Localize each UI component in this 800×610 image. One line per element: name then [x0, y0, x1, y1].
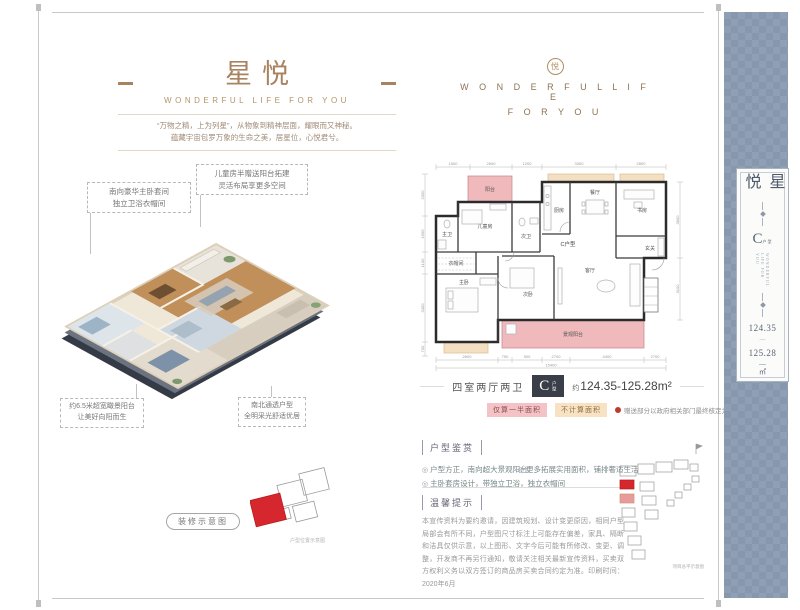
- callout-text: 儿童房半赠送阳台拓建: [201, 168, 303, 180]
- appreciation-item: ◎主卧套房设计，带独立卫浴，独立衣帽间: [422, 477, 626, 491]
- callout-wide-balcony: 约6.5米超宽瞰景阳台 让美好向阳而生: [60, 398, 144, 428]
- highlighted-unit: [250, 493, 286, 527]
- sidebar-title: 星悦: [739, 173, 787, 196]
- unit-badge-sub: 户型: [551, 381, 557, 392]
- callout-text: 全明采光舒适优居: [243, 412, 301, 423]
- appreciation-section: 户型鉴赏 ◎户型方正，南向超大景观阳台 ◎更多拓展实用面积，铺排奢适生活 ◎主卧…: [422, 438, 626, 492]
- notice-title: 温馨提示: [422, 495, 482, 510]
- dim-total-label: 15400: [545, 363, 557, 368]
- dim-label: 3800: [675, 215, 680, 225]
- room-label: 餐厅: [590, 189, 600, 196]
- layout-text: 四室两厅两卫: [452, 379, 524, 394]
- sidebar-area1: 124.35: [749, 323, 777, 333]
- legend-note: 赠送部分以政府相关部门最终核定为准: [615, 405, 735, 415]
- highlighted-building: [620, 480, 634, 489]
- room-label: 次卧: [523, 291, 533, 298]
- room-label: 阳台: [485, 186, 495, 193]
- dim-label: 1600: [420, 229, 425, 239]
- equipment-platform: [644, 278, 658, 312]
- crop-mark: [36, 4, 41, 11]
- tagline-line1: “万物之精，上为列星”，从物象到精神层面，耀眼而又神秘。: [120, 120, 394, 132]
- dim-label: 2700: [651, 354, 661, 359]
- notice-section: 温馨提示 本宣传资料为要约邀请，因建筑规划、设计变更原因，相同户型局部会有所不同…: [422, 493, 624, 592]
- tagline: “万物之精，上为列星”，从物象到精神层面，耀眼而又神秘。 蕴藏宇宙包罗万象的生命…: [118, 114, 396, 151]
- dim-label: 2700: [552, 354, 562, 359]
- crop-mark: [716, 4, 721, 11]
- callout-text: 灵活布局享更多空间: [201, 180, 303, 192]
- isometric-render: [45, 198, 355, 423]
- callout-text: 南北通透户型: [243, 401, 301, 412]
- unit-badge-letter: C: [539, 379, 549, 394]
- dim-label: 4400: [603, 354, 613, 359]
- compass-icon: [696, 444, 702, 454]
- unit-location-caption: 户型位置示意图: [290, 537, 325, 544]
- room-label: 主卧: [459, 279, 469, 286]
- divider: [680, 386, 704, 387]
- dim-label: 1500: [449, 161, 459, 166]
- dim-label: 2000: [420, 190, 425, 200]
- dim-label: 1100: [420, 258, 425, 267]
- callout-text: 南向豪华主卧套间: [92, 186, 186, 198]
- room-label: 儿童房: [477, 223, 492, 230]
- sidebar-unit: C户型: [752, 232, 772, 247]
- dim-label: 2600: [463, 354, 473, 359]
- appreciation-item: ◎户型方正，南向超大景观阳台: [422, 463, 518, 477]
- area-prefix: 约: [572, 385, 579, 392]
- bay-window-area: [444, 342, 488, 353]
- sidebar-vertical-english: WONDERFUL LIFE FOR YOU: [755, 253, 770, 287]
- sidebar-unit-sub: 户型: [763, 239, 773, 244]
- room-label: 衣帽间: [448, 260, 463, 267]
- dim-label: 2800: [637, 161, 647, 166]
- dim-label: 900: [524, 354, 531, 359]
- appreciation-item-text: 户型方正，南向超大景观阳台: [430, 465, 528, 474]
- room-label: 次卫: [521, 233, 531, 240]
- dim-label: 3300: [575, 161, 585, 166]
- legend-half-tag: 仅算一半面积: [487, 403, 547, 417]
- site-plan-diagram: 项目总平示意图: [612, 438, 708, 580]
- frame-left: [38, 4, 39, 606]
- appreciation-title: 户型鉴赏: [422, 440, 482, 455]
- brand-seal-char: 悦: [551, 61, 559, 72]
- callout-text: 独立卫浴衣帽间: [92, 198, 186, 210]
- frame-top: [52, 12, 704, 13]
- room-label: 书房: [637, 207, 647, 214]
- dim-label: 3400: [420, 303, 425, 313]
- area-text: 约124.35-125.28m²: [572, 379, 671, 393]
- crop-mark: [36, 600, 41, 607]
- header-subtitle: WONDERFUL LIFE FOR YOU: [118, 96, 396, 105]
- brand-seal-icon: 悦: [547, 58, 564, 75]
- callout-connector: [136, 384, 137, 398]
- sidebar-dash: —: [760, 339, 766, 343]
- callout-connector: [90, 208, 91, 254]
- room-label: 玄关: [645, 245, 655, 252]
- unit-badge: C 户型: [532, 375, 564, 397]
- callout-master-suite: 南向豪华主卧套间 独立卫浴衣帽间: [87, 182, 191, 213]
- legend-note-text: 赠送部分以政府相关部门最终核定为准: [624, 405, 735, 415]
- red-dot-icon: [615, 407, 621, 413]
- callout-north-south: 南北通透户型 全明采光舒适优居: [238, 397, 306, 427]
- sidebar-area-unit: ㎡: [759, 364, 766, 377]
- header-left: 星悦 WONDERFUL LIFE FOR YOU “万物之精，上为列星”，从物…: [118, 52, 396, 151]
- room-label: 厨房: [554, 207, 564, 214]
- floor-plan-2d: 1500 2600 1200 3300 2800 2600 750 900 27…: [418, 160, 698, 372]
- dim-label: 1200: [523, 161, 533, 166]
- sidebar-card: 星悦 C户型 WONDERFUL LIFE FOR YOU 124.35 — 1…: [736, 168, 789, 382]
- render-caption: 装修示意图: [166, 513, 240, 530]
- sidebar-area2: 125.28: [749, 348, 777, 358]
- room-label: 主卫: [442, 231, 452, 238]
- dim-label: 700: [420, 345, 425, 352]
- divider-ornament: [761, 202, 765, 226]
- dim-label: 750: [502, 354, 509, 359]
- bullet-icon: ◎: [518, 467, 524, 474]
- callout-children-room: 儿童房半赠送阳台拓建 灵活布局享更多空间: [196, 164, 308, 195]
- dim-label: 3100: [675, 284, 680, 294]
- frame-right: [718, 4, 719, 606]
- appreciation-item: ◎更多拓展实用面积，铺排奢适生活: [518, 463, 626, 477]
- divider: [420, 386, 444, 387]
- header-right-line1: W O N D E R F U L L I F E: [455, 82, 655, 102]
- callout-text: 让美好向阳而生: [65, 413, 139, 424]
- frame-bottom: [52, 598, 704, 599]
- callout-connector: [200, 191, 201, 227]
- room-label: 景观阳台: [563, 331, 583, 338]
- page-title: 星悦: [215, 52, 299, 91]
- tagline-line2: 蕴藏宇宙包罗万象的生命之美，居星位，心悦君兮。: [120, 132, 394, 144]
- title-dash-right: [381, 82, 396, 85]
- unit-type-label: C户型: [561, 240, 576, 248]
- header-right: 悦 W O N D E R F U L L I F E F O R Y O U: [455, 58, 655, 117]
- bullet-icon: ◎: [422, 467, 428, 474]
- callout-connector: [271, 386, 272, 397]
- legend-none-tag: 不计算面积: [555, 403, 607, 417]
- highlighted-building-2: [620, 494, 634, 503]
- area-value: 124.35-125.28m²: [580, 379, 671, 393]
- legend-row: 仅算一半面积 不计算面积 赠送部分以政府相关部门最终核定为准: [487, 403, 735, 417]
- crop-mark: [716, 600, 721, 607]
- site-plan-caption: 项目总平示意图: [673, 563, 705, 570]
- title-dash-left: [118, 82, 133, 85]
- spec-row: 四室两厅两卫 C 户型 约124.35-125.28m²: [420, 375, 704, 397]
- divider-ornament: [761, 293, 765, 317]
- room-label: 客厅: [585, 267, 595, 274]
- sidebar-unit-letter: C: [752, 231, 762, 247]
- unit-location-diagram: [250, 455, 335, 550]
- callout-text: 约6.5米超宽瞰景阳台: [65, 402, 139, 413]
- header-right-line2: F O R Y O U: [455, 107, 655, 117]
- dim-label: 2600: [487, 161, 497, 166]
- divider: [422, 487, 622, 488]
- notice-body: 本宣传资料为要约邀请，因建筑规划、设计变更原因，相同户型局部会有所不同，户型图尺…: [422, 516, 624, 592]
